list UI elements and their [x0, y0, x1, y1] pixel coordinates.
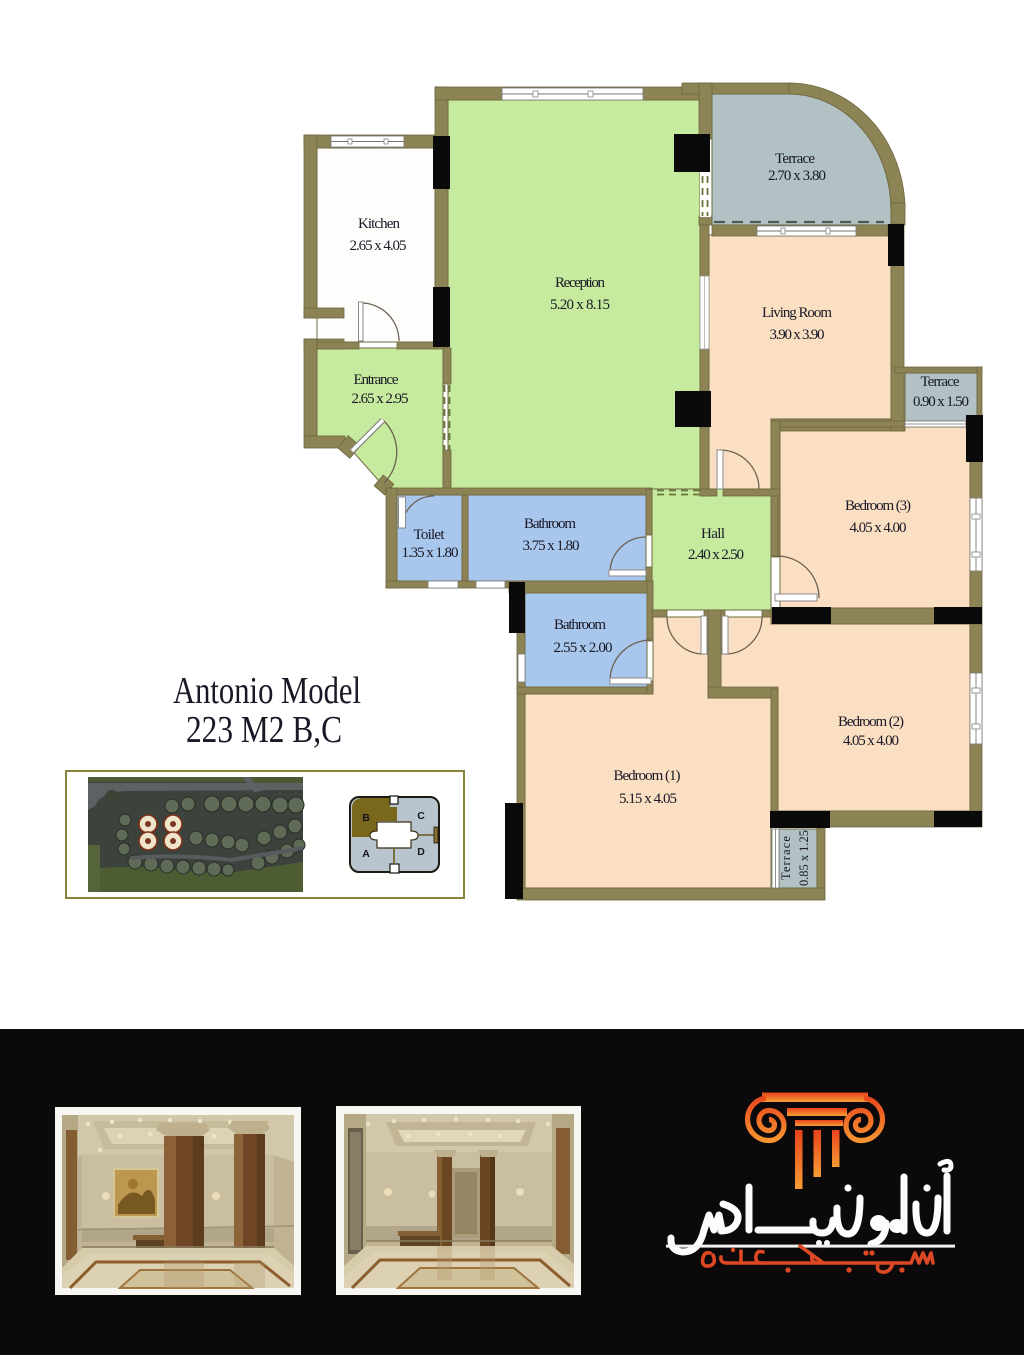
- svg-text:Terrace: Terrace: [779, 836, 793, 880]
- svg-text:3.75 x 1.80: 3.75 x 1.80: [523, 538, 580, 554]
- svg-text:4.05 x 4.00: 4.05 x 4.00: [850, 520, 907, 536]
- svg-text:Bedroom (1): Bedroom (1): [614, 768, 681, 784]
- svg-text:0.85 x 1.25: 0.85 x 1.25: [797, 830, 811, 886]
- svg-text:Kitchen: Kitchen: [358, 216, 401, 232]
- svg-text:D: D: [417, 846, 425, 858]
- svg-text:Entrance: Entrance: [354, 372, 399, 388]
- svg-text:Bedroom (3): Bedroom (3): [845, 498, 911, 514]
- svg-text:2.70 x 3.80: 2.70 x 3.80: [768, 168, 826, 184]
- svg-text:Terrace: Terrace: [775, 151, 815, 167]
- svg-text:Living Room: Living Room: [762, 305, 832, 321]
- svg-text:5.20 x 8.15: 5.20 x 8.15: [550, 297, 610, 313]
- svg-text:0.90 x 1.50: 0.90 x 1.50: [913, 394, 969, 410]
- svg-text:Bathroom: Bathroom: [524, 516, 576, 532]
- svg-text:2.40 x 2.50: 2.40 x 2.50: [688, 547, 744, 563]
- svg-text:2.65 x 2.95: 2.65 x 2.95: [352, 391, 409, 407]
- svg-text:Toilet: Toilet: [414, 527, 446, 543]
- svg-text:Antonio Model: Antonio Model: [173, 670, 361, 712]
- svg-text:2.55 x 2.00: 2.55 x 2.00: [554, 640, 613, 656]
- svg-text:Bathroom: Bathroom: [554, 617, 606, 633]
- svg-text:Terrace: Terrace: [921, 374, 960, 390]
- svg-text:3.90 x 3.90: 3.90 x 3.90: [770, 327, 825, 343]
- svg-text:A: A: [362, 848, 370, 860]
- svg-text:Hall: Hall: [701, 526, 725, 542]
- svg-text:2.65 x 4.05: 2.65 x 4.05: [350, 238, 407, 254]
- svg-text:Bedroom (2): Bedroom (2): [838, 714, 904, 730]
- svg-text:223 M2 B,C: 223 M2 B,C: [186, 709, 342, 751]
- svg-text:C: C: [417, 810, 425, 822]
- svg-text:4.05 x 4.00: 4.05 x 4.00: [843, 733, 899, 749]
- svg-text:1.35 x 1.80: 1.35 x 1.80: [402, 545, 459, 561]
- svg-text:Reception: Reception: [555, 275, 606, 291]
- svg-text:B: B: [362, 812, 370, 824]
- svg-text:5.15 x 4.05: 5.15 x 4.05: [619, 791, 677, 807]
